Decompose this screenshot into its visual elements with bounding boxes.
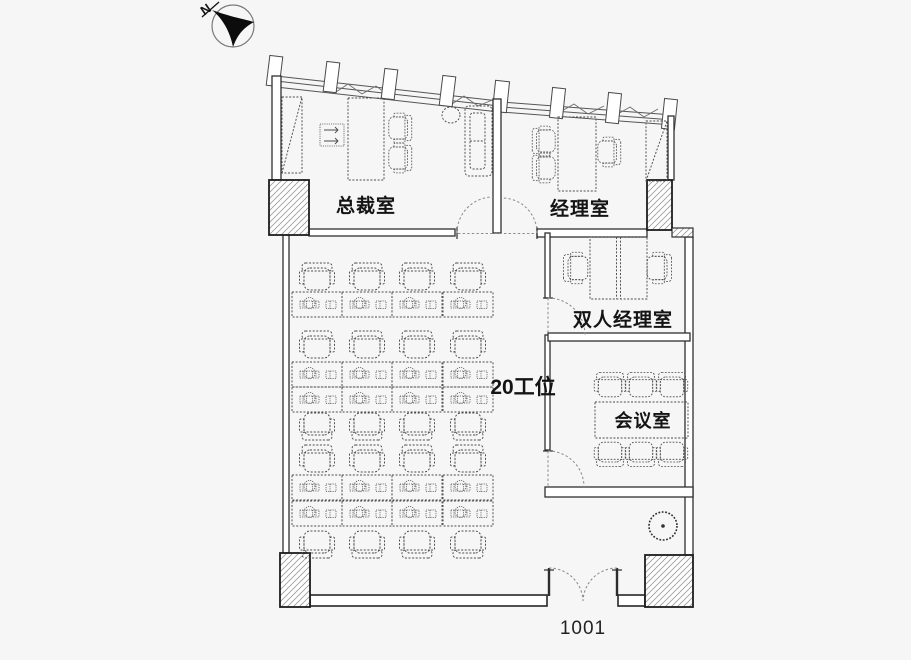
- workstation-desk: [292, 362, 342, 387]
- north-label: N: [197, 1, 213, 19]
- workstation-desk: [342, 501, 392, 526]
- executive-desk: [558, 117, 596, 191]
- workstation-chair: [350, 445, 385, 472]
- walls: [272, 76, 693, 606]
- workstation-chair: [350, 531, 385, 558]
- workstation-chair: [451, 263, 486, 290]
- workstation-desk: [292, 292, 342, 317]
- window-wall: [266, 55, 677, 129]
- door-arc-meeting: [548, 451, 584, 487]
- doors: [457, 197, 622, 601]
- workstation-desk: [443, 387, 493, 412]
- workstation-desk: [443, 362, 493, 387]
- workstation-chair: [300, 413, 335, 440]
- workstation-chair: [400, 445, 435, 472]
- column: [672, 228, 693, 237]
- manager-office-furniture: [532, 117, 667, 191]
- meeting-chair: [656, 442, 688, 466]
- labels: 总裁室 经理室 双人经理室 会议室 20工位 1001: [336, 194, 673, 639]
- side-table: [442, 107, 460, 123]
- unit-number-label: 1001: [560, 618, 606, 639]
- sofa: [465, 106, 492, 176]
- room-label-double-manager-office: 双人经理室: [573, 308, 673, 331]
- workstation-chair: [300, 263, 335, 290]
- cabinet: [282, 97, 302, 173]
- executive-desk: [348, 98, 384, 180]
- chair: [532, 153, 555, 183]
- chair: [532, 126, 555, 156]
- workstation-desk: [392, 362, 442, 387]
- chair: [389, 113, 412, 143]
- workstation-chair: [300, 445, 335, 472]
- chair: [389, 143, 412, 173]
- chair: [598, 137, 621, 167]
- chair: [647, 252, 671, 284]
- plant-icon: [649, 512, 677, 540]
- open-office-workstations: [292, 263, 493, 558]
- visitor-chair: [320, 124, 344, 146]
- workstation-desk: [342, 362, 392, 387]
- workstation-desk: [392, 501, 442, 526]
- room-label-manager-office: 经理室: [550, 197, 610, 220]
- workstation-desk: [292, 501, 342, 526]
- workstation-chair: [451, 413, 486, 440]
- entrance-double-door: [544, 568, 622, 601]
- meeting-chair: [625, 373, 657, 397]
- column: [647, 180, 672, 230]
- chair: [564, 252, 588, 284]
- workstation-chair: [400, 531, 435, 558]
- floor-plan-canvas: N 总裁室 经理室 双人经理室 会议室 20工位 1001: [0, 0, 911, 660]
- workstation-chair: [350, 413, 385, 440]
- workstation-desk: [292, 387, 342, 412]
- workstation-chair: [451, 445, 486, 472]
- workstation-desk: [392, 475, 442, 500]
- room-label-meeting-room: 会议室: [615, 410, 672, 431]
- door-arc-president: [457, 197, 493, 233]
- workstation-chair: [400, 413, 435, 440]
- cabinet: [646, 121, 667, 181]
- shared-desk: [590, 237, 647, 299]
- workstation-chair: [300, 331, 335, 358]
- workstation-chair: [350, 331, 385, 358]
- workstation-desk: [342, 292, 392, 317]
- workstation-chair: [350, 263, 385, 290]
- meeting-chair: [625, 442, 657, 466]
- north-arrow-icon: N: [197, 1, 254, 47]
- open-area-label: 20工位: [490, 375, 555, 399]
- meeting-chair: [594, 373, 626, 397]
- workstation-desk: [342, 475, 392, 500]
- workstation-desk: [443, 501, 493, 526]
- workstation-desk: [443, 292, 493, 317]
- door-arc-manager: [502, 198, 537, 233]
- workstation-desk: [342, 387, 392, 412]
- workstation-chair: [451, 331, 486, 358]
- workstation-desk: [443, 475, 493, 500]
- workstation-desk: [392, 292, 442, 317]
- double-manager-office-furniture: [564, 237, 672, 299]
- workstation-desk: [392, 387, 442, 412]
- president-office-furniture: [282, 97, 492, 180]
- meeting-chair: [594, 442, 626, 466]
- workstation-chair: [400, 263, 435, 290]
- workstation-chair: [400, 331, 435, 358]
- column: [280, 553, 310, 607]
- meeting-chair: [656, 373, 688, 397]
- workstation-chair: [451, 531, 486, 558]
- workstation-desk: [292, 475, 342, 500]
- column: [645, 555, 693, 607]
- column: [269, 180, 309, 235]
- room-label-president-office: 总裁室: [336, 194, 396, 217]
